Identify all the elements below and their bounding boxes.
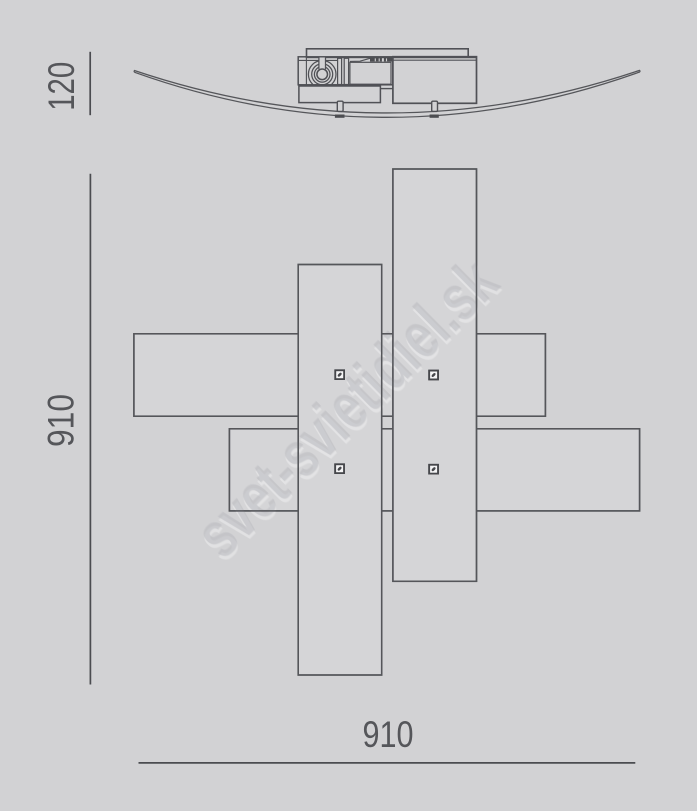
svg-text:910: 910 — [363, 714, 414, 755]
svg-text:120: 120 — [41, 62, 82, 111]
svg-text:910: 910 — [41, 394, 82, 447]
